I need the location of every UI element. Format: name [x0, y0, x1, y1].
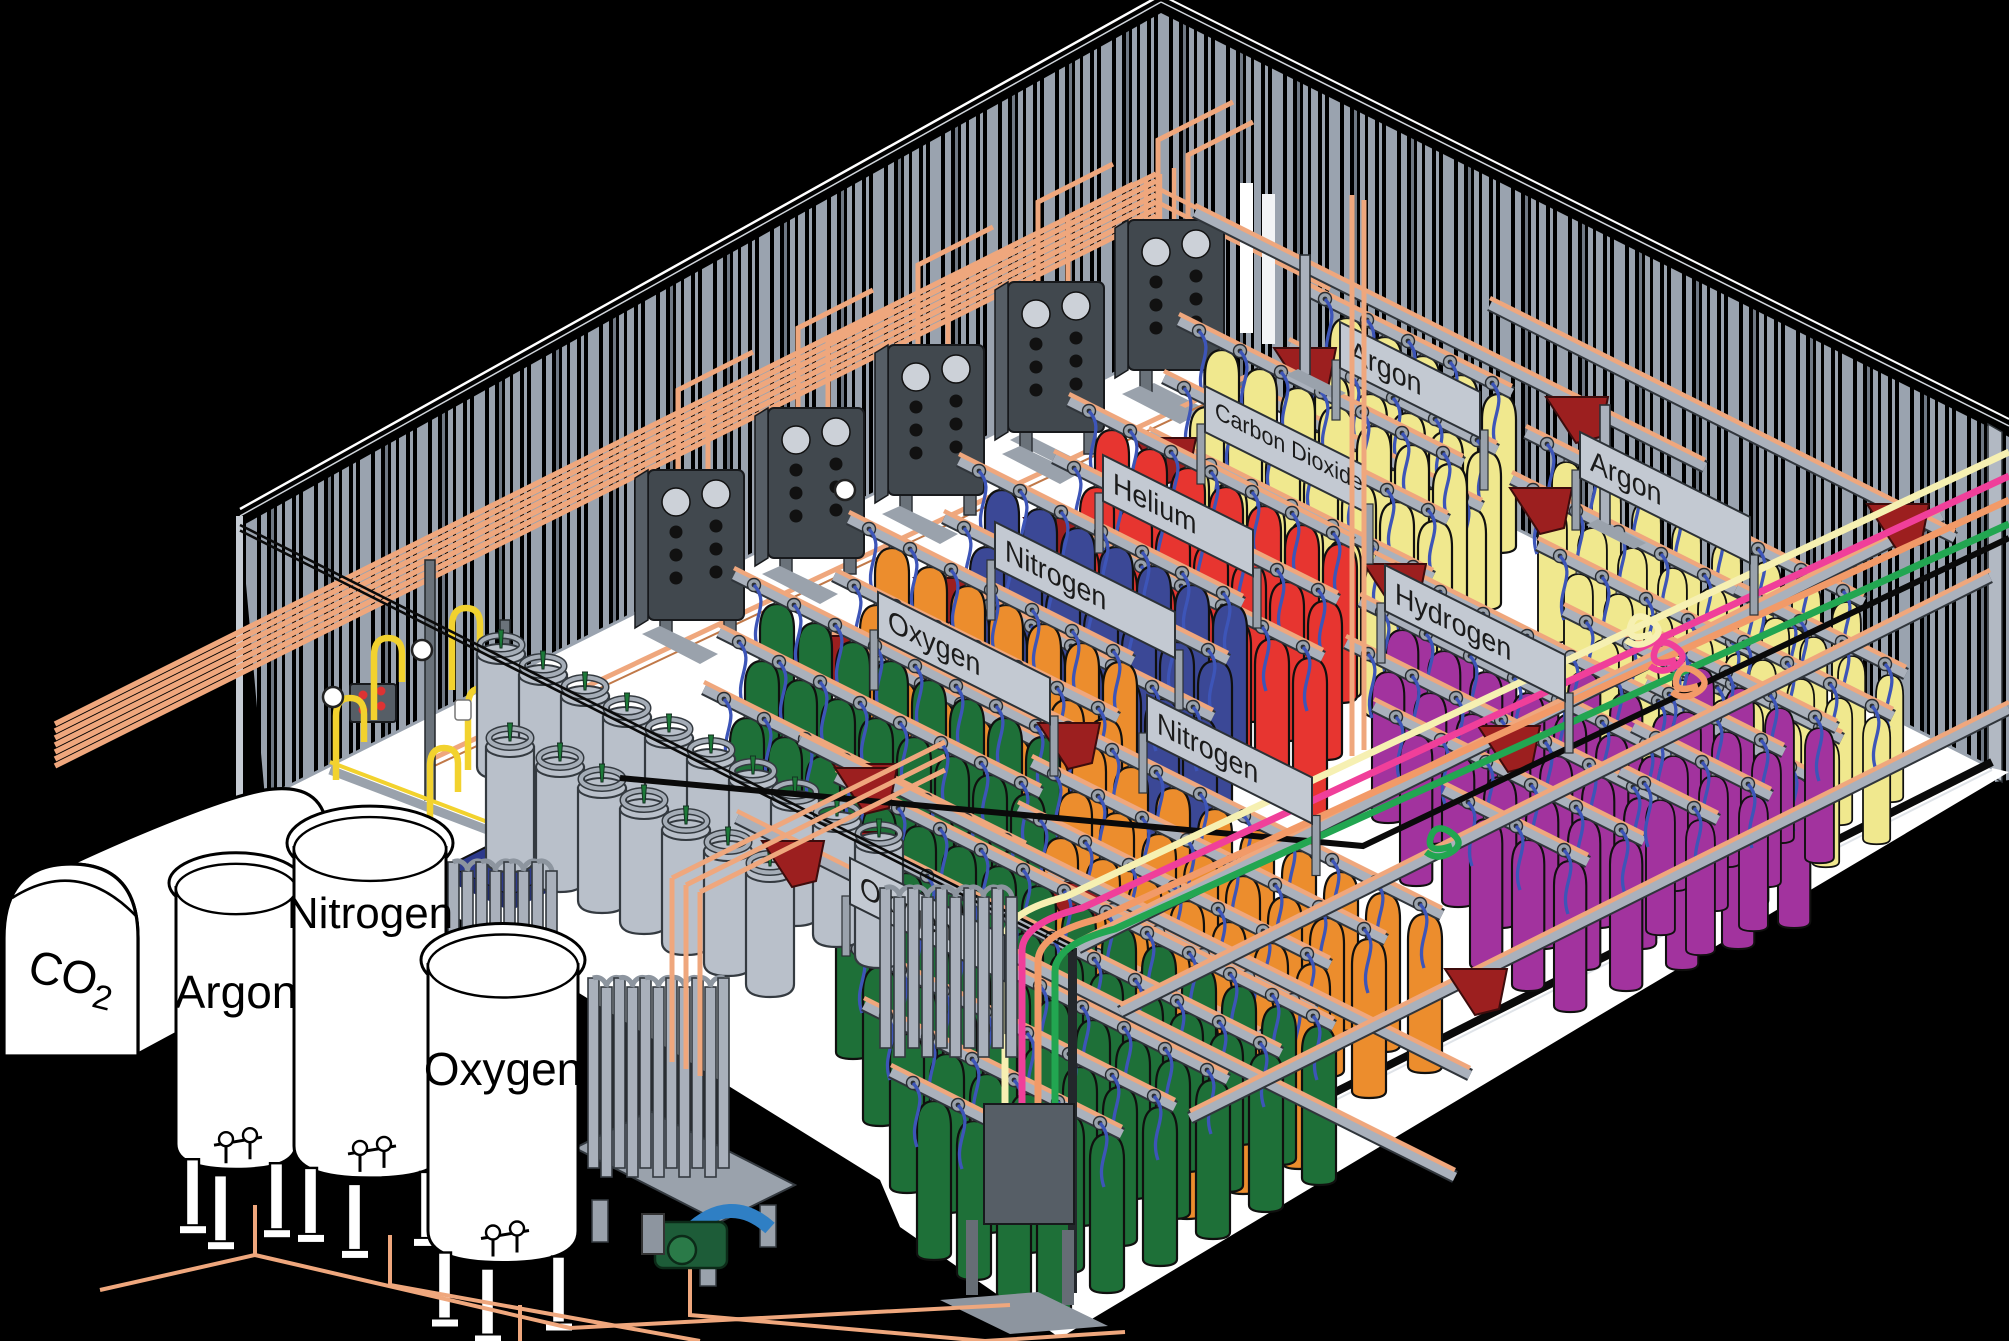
svg-text:Nitrogen: Nitrogen [287, 889, 453, 938]
svg-text:Argon: Argon [175, 966, 298, 1018]
svg-text:Oxygen: Oxygen [424, 1043, 583, 1095]
